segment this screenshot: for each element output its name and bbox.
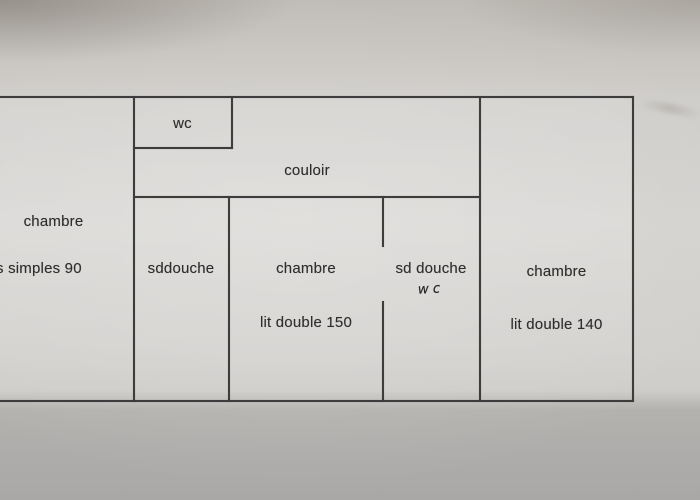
wall-top bbox=[0, 96, 634, 98]
couloir-label: couloir bbox=[133, 162, 481, 179]
sddouche-label: sddouche bbox=[133, 260, 229, 277]
wall-couloir-bottom bbox=[133, 196, 481, 198]
room-left-name-label: chambre bbox=[0, 213, 107, 230]
room-left-detail-label: s simples 90 bbox=[0, 260, 82, 277]
wall-bottom bbox=[0, 400, 634, 402]
room-right-detail-label: lit double 140 bbox=[480, 316, 633, 333]
wall-right bbox=[632, 96, 634, 402]
wall-left-room-divider bbox=[133, 96, 135, 402]
room-right-name-label: chambre bbox=[480, 263, 633, 280]
paper-crease bbox=[638, 98, 700, 119]
wall-showerright-left-upper bbox=[382, 196, 384, 247]
wall-sddouche-right bbox=[228, 196, 230, 402]
sd-douche-label: sd douche bbox=[382, 260, 480, 277]
floor-plan-photo: chambre s simples 90 wc couloir sddouche… bbox=[0, 0, 700, 500]
floor-plan-drawing: chambre s simples 90 wc couloir sddouche… bbox=[0, 96, 634, 402]
wall-right-room-divider bbox=[479, 96, 481, 402]
room-center-name-label: chambre bbox=[229, 260, 383, 277]
room-center-detail-label: lit double 150 bbox=[229, 314, 383, 331]
sd-douche-handwritten-wc-note: wc bbox=[382, 278, 481, 300]
wc-label: wc bbox=[133, 115, 232, 132]
wall-wc-bottom bbox=[133, 147, 233, 149]
